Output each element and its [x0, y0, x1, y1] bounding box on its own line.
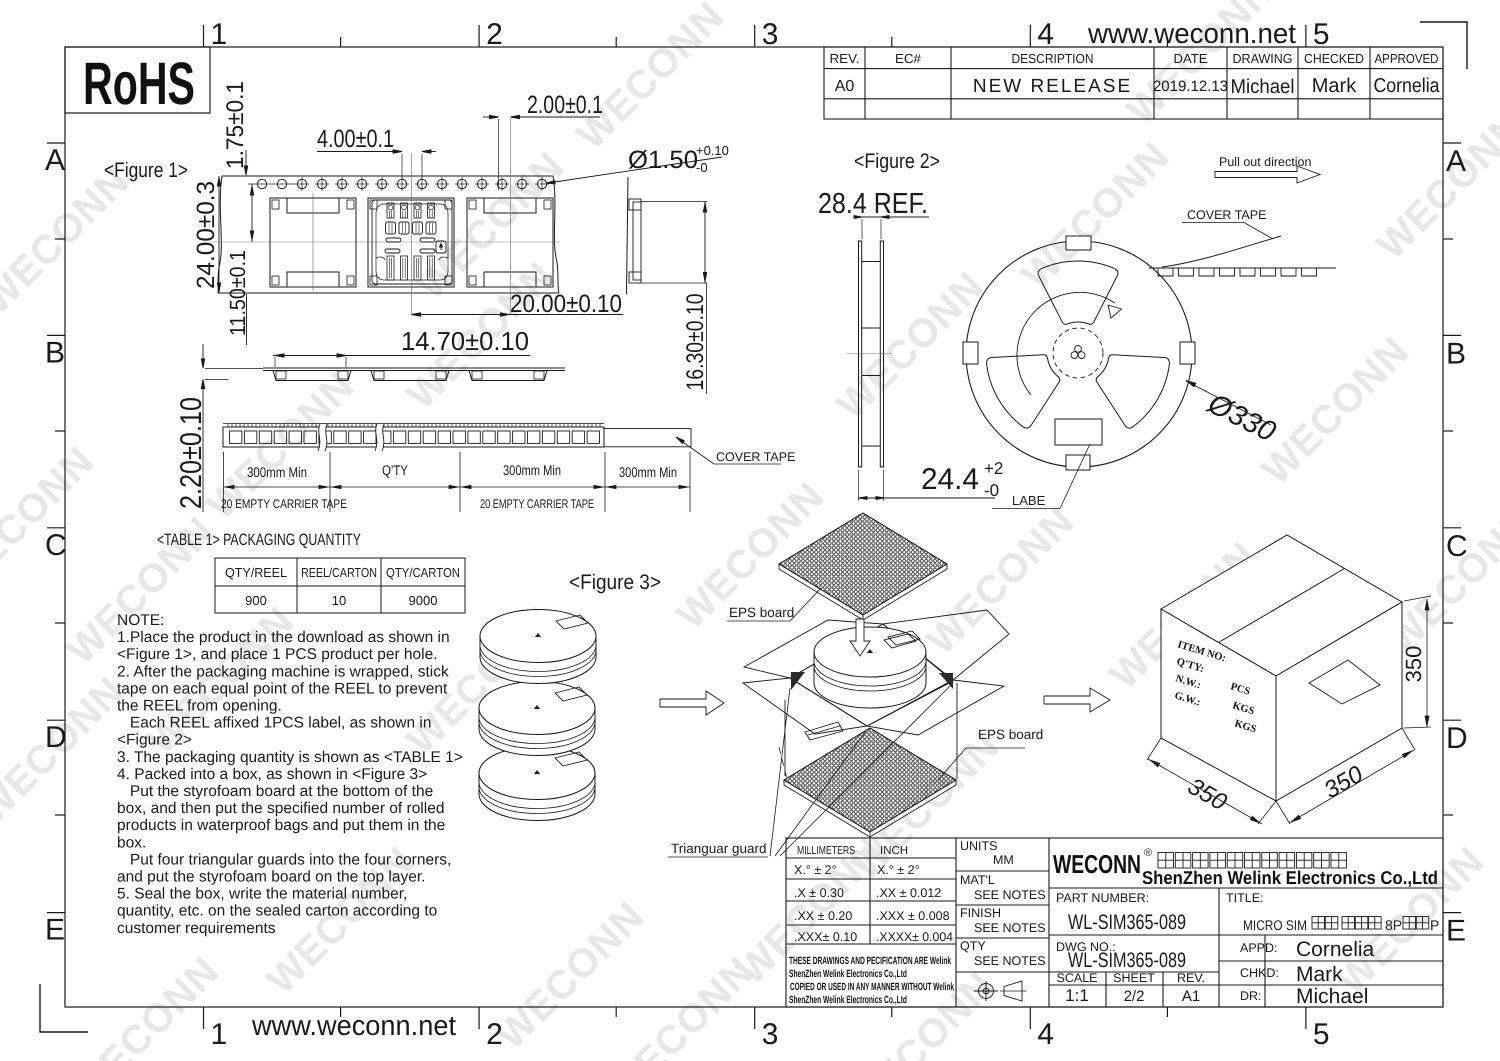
svg-text:CHKD:: CHKD: [1240, 966, 1279, 980]
svg-text:P: P [1430, 917, 1439, 933]
svg-text:EPS board: EPS board [729, 605, 794, 620]
svg-text:WL-SIM365-089: WL-SIM365-089 [1068, 911, 1186, 934]
svg-text:box.: box. [117, 834, 146, 851]
svg-text:LABE: LABE [1012, 493, 1046, 508]
svg-text:UNITS: UNITS [960, 839, 998, 853]
svg-text:2.00±0.1: 2.00±0.1 [527, 91, 603, 119]
svg-text:DRAWING: DRAWING [1233, 51, 1293, 66]
svg-text:ShenZhen Welink Electronics Co: ShenZhen Welink Electronics Co.,Ltd [1142, 867, 1438, 888]
svg-text:350: 350 [1401, 646, 1426, 683]
svg-text:+2: +2 [984, 459, 1003, 478]
svg-text:APPD:: APPD: [1240, 941, 1278, 955]
svg-text:WECONN: WECONN [1053, 849, 1141, 879]
svg-text:Each REEL affixed 1PCS label,: Each REEL affixed 1PCS label, as shown i… [117, 715, 431, 732]
svg-text:Pull out direction: Pull out direction [1219, 155, 1311, 169]
svg-text:products in waterproof bags an: products in waterproof bags and put them… [117, 817, 445, 834]
svg-text:and put the styrofoam board on: and put the styrofoam board on the top l… [117, 869, 425, 886]
svg-text:REV.: REV. [1177, 971, 1205, 985]
svg-text:CHECKED: CHECKED [1304, 51, 1364, 66]
svg-text:.XX ± 0.012: .XX ± 0.012 [876, 886, 941, 900]
svg-text:MILLIMETERS: MILLIMETERS [797, 845, 855, 857]
svg-text:28.4 REF.: 28.4 REF. [818, 188, 928, 220]
svg-text:COVER TAPE: COVER TAPE [716, 450, 795, 464]
svg-text:20.00±0.10: 20.00±0.10 [510, 290, 622, 318]
svg-text:5: 5 [1313, 1018, 1330, 1051]
svg-text:5. Seal the box, write the mat: 5. Seal the box, write the material numb… [117, 886, 407, 903]
svg-text:SHEET: SHEET [1113, 971, 1155, 985]
svg-text:Mark: Mark [1296, 963, 1343, 986]
svg-text:THESE DRAWINGS AND PECIFICATIO: THESE DRAWINGS AND PECIFICATION ARE Weli… [789, 955, 951, 967]
svg-text:1: 1 [211, 1018, 228, 1051]
svg-text:<Figure 1>, and place 1 PCS pr: <Figure 1>, and place 1 PCS product per … [117, 646, 438, 663]
svg-text:.X ± 0.30: .X ± 0.30 [794, 886, 844, 900]
svg-text:SEE NOTES: SEE NOTES [974, 954, 1046, 968]
svg-text:COVER TAPE: COVER TAPE [1187, 208, 1266, 222]
svg-text:1: 1 [211, 18, 228, 51]
svg-text:E: E [45, 914, 65, 947]
svg-text:NEW RELEASE: NEW RELEASE [973, 76, 1132, 97]
svg-text:1.Place the product in the dow: 1.Place the product in the download as s… [117, 629, 450, 646]
svg-text:®: ® [1144, 847, 1152, 859]
svg-text:RoHS: RoHS [83, 50, 195, 117]
svg-text:tape on each equal point of th: tape on each equal point of the REEL to … [117, 680, 448, 697]
svg-text:4.00±0.1: 4.00±0.1 [317, 125, 394, 153]
svg-text:FINISH: FINISH [960, 906, 1001, 920]
svg-text:<Figure 2>: <Figure 2> [117, 732, 192, 749]
svg-text:1.75±0.1: 1.75±0.1 [222, 81, 249, 169]
svg-text:300mm Min: 300mm Min [619, 464, 677, 480]
svg-text:WL-SIM365-089: WL-SIM365-089 [1068, 949, 1186, 972]
svg-text:MAT'L: MAT'L [960, 873, 995, 887]
svg-text:APPROVED: APPROVED [1375, 51, 1439, 66]
svg-text:D: D [45, 721, 67, 754]
svg-text:B: B [1446, 337, 1466, 370]
svg-text:MICRO SIM: MICRO SIM [1243, 917, 1307, 933]
svg-text:quantity, etc. on the sealed c: quantity, etc. on the sealed carton acco… [117, 903, 437, 920]
svg-text:A: A [45, 144, 65, 177]
svg-text:A: A [1446, 145, 1466, 178]
svg-text:900: 900 [245, 593, 267, 608]
svg-text:2: 2 [486, 18, 503, 51]
svg-text:20 EMPTY CARRIER TAPE: 20 EMPTY CARRIER TAPE [480, 497, 594, 511]
svg-text:COPIED OR USED IN ANY MANNER W: COPIED OR USED IN ANY MANNER WITHOUT Wel… [790, 981, 954, 993]
svg-text:C: C [45, 529, 67, 562]
svg-text:QTY/CARTON: QTY/CARTON [386, 565, 460, 580]
svg-text:the REEL from opening.: the REEL from opening. [117, 698, 282, 715]
svg-text:Cornelia: Cornelia [1296, 938, 1375, 961]
svg-text:REEL/CARTON: REEL/CARTON [301, 565, 377, 580]
svg-text:SCALE: SCALE [1057, 971, 1098, 985]
svg-text:<Figure 3>: <Figure 3> [569, 571, 661, 594]
svg-text:16.30±0.10: 16.30±0.10 [682, 294, 709, 391]
svg-text:INCH: INCH [880, 845, 908, 857]
svg-text:3: 3 [762, 18, 779, 51]
svg-text:2019.12.13: 2019.12.13 [1153, 78, 1228, 95]
svg-text:.XXX± 0.10: .XXX± 0.10 [794, 930, 857, 944]
svg-text:24.4: 24.4 [921, 463, 979, 496]
svg-text:DESCRIPTION: DESCRIPTION [1012, 51, 1094, 66]
svg-text:Cornelia: Cornelia [1374, 75, 1441, 97]
svg-text:DR:: DR: [1240, 989, 1262, 1003]
svg-text:REV.: REV. [830, 51, 860, 66]
svg-text:14.70±0.10: 14.70±0.10 [401, 326, 529, 356]
svg-text:SEE NOTES: SEE NOTES [974, 888, 1046, 902]
svg-text:24.00±0.3: 24.00±0.3 [192, 181, 220, 289]
svg-text:C: C [1446, 530, 1468, 563]
svg-text:A1: A1 [1182, 988, 1200, 1005]
svg-text:<TABLE 1> PACKAGING QUANTITY: <TABLE 1> PACKAGING QUANTITY [157, 531, 361, 549]
svg-text:+0.10: +0.10 [696, 143, 729, 158]
svg-text:QTY/REEL: QTY/REEL [225, 565, 287, 580]
svg-text:ShenZhen Welink Electronics Co: ShenZhen Welink Electronics Co.,Ltd [789, 994, 907, 1006]
svg-text:Trianguar guard: Trianguar guard [671, 841, 767, 856]
svg-text:9000: 9000 [409, 593, 438, 608]
svg-text:8P: 8P [1385, 917, 1402, 933]
svg-text:QTY: QTY [960, 939, 986, 953]
svg-text:EC#: EC# [895, 51, 922, 66]
svg-text:X.° ± 2°: X.° ± 2° [794, 863, 837, 877]
svg-text:box, and then put the specifie: box, and then put the specified number o… [117, 800, 444, 817]
svg-text:A0: A0 [835, 78, 855, 95]
svg-text:B: B [45, 336, 65, 369]
svg-text:Michael: Michael [1296, 985, 1368, 1008]
svg-text:20 EMPTY CARRIER TAPE: 20 EMPTY CARRIER TAPE [221, 497, 347, 511]
svg-text:Put four triangular guards int: Put four triangular guards into the four… [117, 851, 451, 868]
svg-text:Michael: Michael [1231, 76, 1295, 98]
svg-text:.XXX ± 0.008: .XXX ± 0.008 [876, 909, 950, 923]
svg-text:4. Packed into a box, as shown: 4. Packed into a box, as shown in <Figur… [117, 766, 427, 783]
svg-text:TITLE:: TITLE: [1226, 891, 1264, 905]
svg-text:www.weconn.net: www.weconn.net [1087, 18, 1296, 49]
svg-text:2/2: 2/2 [1124, 988, 1145, 1005]
svg-text:4: 4 [1037, 1018, 1054, 1051]
svg-text:Q'TY: Q'TY [382, 462, 409, 478]
svg-text:<Figure 1>: <Figure 1> [104, 159, 188, 182]
svg-text:www.weconn.net: www.weconn.net [251, 1010, 456, 1041]
svg-text:10: 10 [332, 593, 346, 608]
svg-text:5: 5 [1313, 18, 1330, 51]
svg-text:3: 3 [762, 1018, 779, 1051]
svg-text:-0: -0 [696, 160, 708, 175]
svg-text:2: 2 [486, 1018, 503, 1051]
svg-text:1:1: 1:1 [1065, 986, 1089, 1005]
svg-text:.XXXX± 0.004: .XXXX± 0.004 [876, 930, 953, 944]
svg-text:300mm Min: 300mm Min [247, 464, 307, 480]
svg-text:X.° ± 2°: X.° ± 2° [877, 863, 920, 877]
svg-text:E: E [1446, 915, 1466, 948]
svg-text:NOTE:: NOTE: [117, 612, 164, 629]
svg-text:ShenZhen Welink Electronics Co: ShenZhen Welink Electronics Co.,Ltd [789, 968, 907, 980]
svg-text:MM: MM [993, 853, 1014, 867]
svg-text:SEE NOTES: SEE NOTES [974, 921, 1046, 935]
svg-text:.XX ± 0.20: .XX ± 0.20 [794, 909, 852, 923]
svg-text:-0: -0 [984, 481, 999, 500]
svg-text:Put the styrofoam board at the: Put the styrofoam board at the bottom of… [117, 783, 433, 800]
svg-text:Mark: Mark [1312, 75, 1357, 97]
svg-text:<Figure 2>: <Figure 2> [854, 150, 940, 173]
svg-text:4: 4 [1037, 18, 1054, 51]
svg-text:D: D [1446, 722, 1468, 755]
svg-text:DATE: DATE [1174, 51, 1208, 66]
svg-text:customer requirements: customer requirements [117, 920, 276, 937]
svg-text:EPS board: EPS board [978, 727, 1043, 742]
svg-text:2. After the packaging machine: 2. After the packaging machine is wrappe… [117, 663, 449, 680]
svg-text:300mm Min: 300mm Min [503, 462, 561, 478]
svg-text:3. The packaging quantity is s: 3. The packaging quantity is shown as <T… [117, 749, 463, 766]
svg-text:PART NUMBER:: PART NUMBER: [1056, 891, 1149, 905]
